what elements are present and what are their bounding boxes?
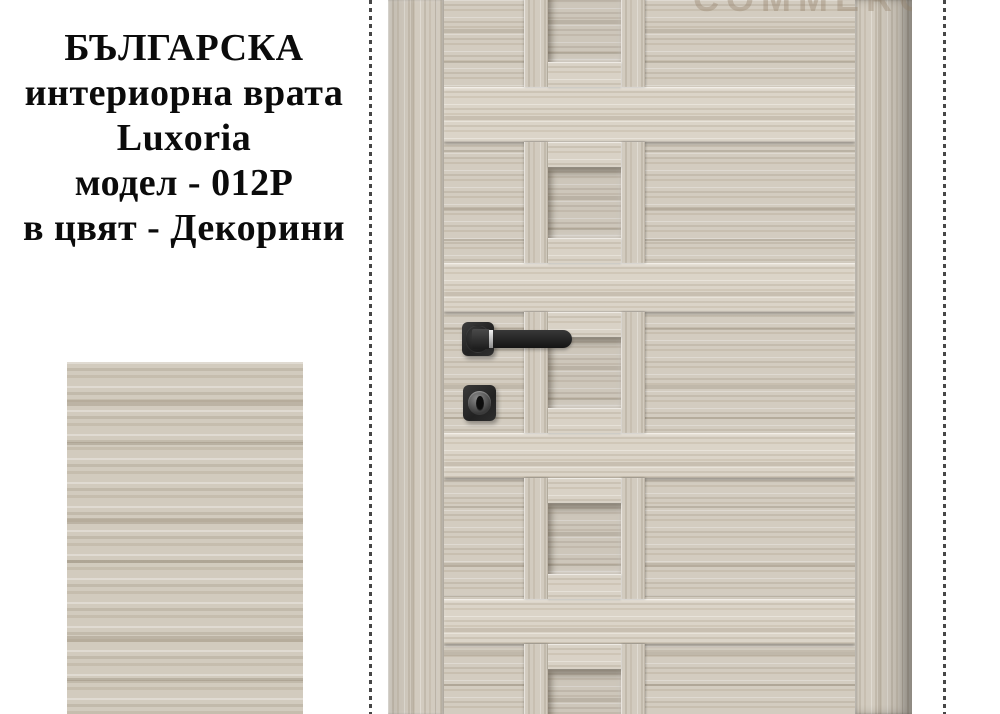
title-line-model: модел - 012P bbox=[0, 161, 368, 206]
thumbturn-ring bbox=[468, 391, 491, 415]
door-handle-base bbox=[472, 329, 490, 349]
door-photo: COMMERCE bbox=[388, 0, 912, 714]
door-handle-lever bbox=[492, 330, 572, 348]
right-dotted-cutline bbox=[943, 0, 946, 714]
door-handle-chrome-accent bbox=[489, 330, 493, 348]
title-line-product-type: интериорна врата bbox=[0, 71, 368, 116]
title-line-color: в цвят - Декорини bbox=[0, 206, 368, 251]
thumbturn-lock bbox=[463, 385, 496, 421]
product-title: БЪЛГАРСКА интериорна врата Luxoria модел… bbox=[0, 26, 368, 251]
product-card: БЪЛГАРСКА интериорна врата Luxoria модел… bbox=[0, 0, 1000, 714]
title-line-origin: БЪЛГАРСКА bbox=[0, 26, 368, 71]
wood-color-swatch bbox=[67, 362, 303, 714]
title-line-brand: Luxoria bbox=[0, 116, 368, 161]
thumbturn-slot bbox=[476, 396, 484, 411]
watermark-text: COMMERCE bbox=[693, 0, 912, 20]
left-dotted-cutline bbox=[369, 0, 372, 714]
door-edge-shading bbox=[388, 0, 912, 714]
